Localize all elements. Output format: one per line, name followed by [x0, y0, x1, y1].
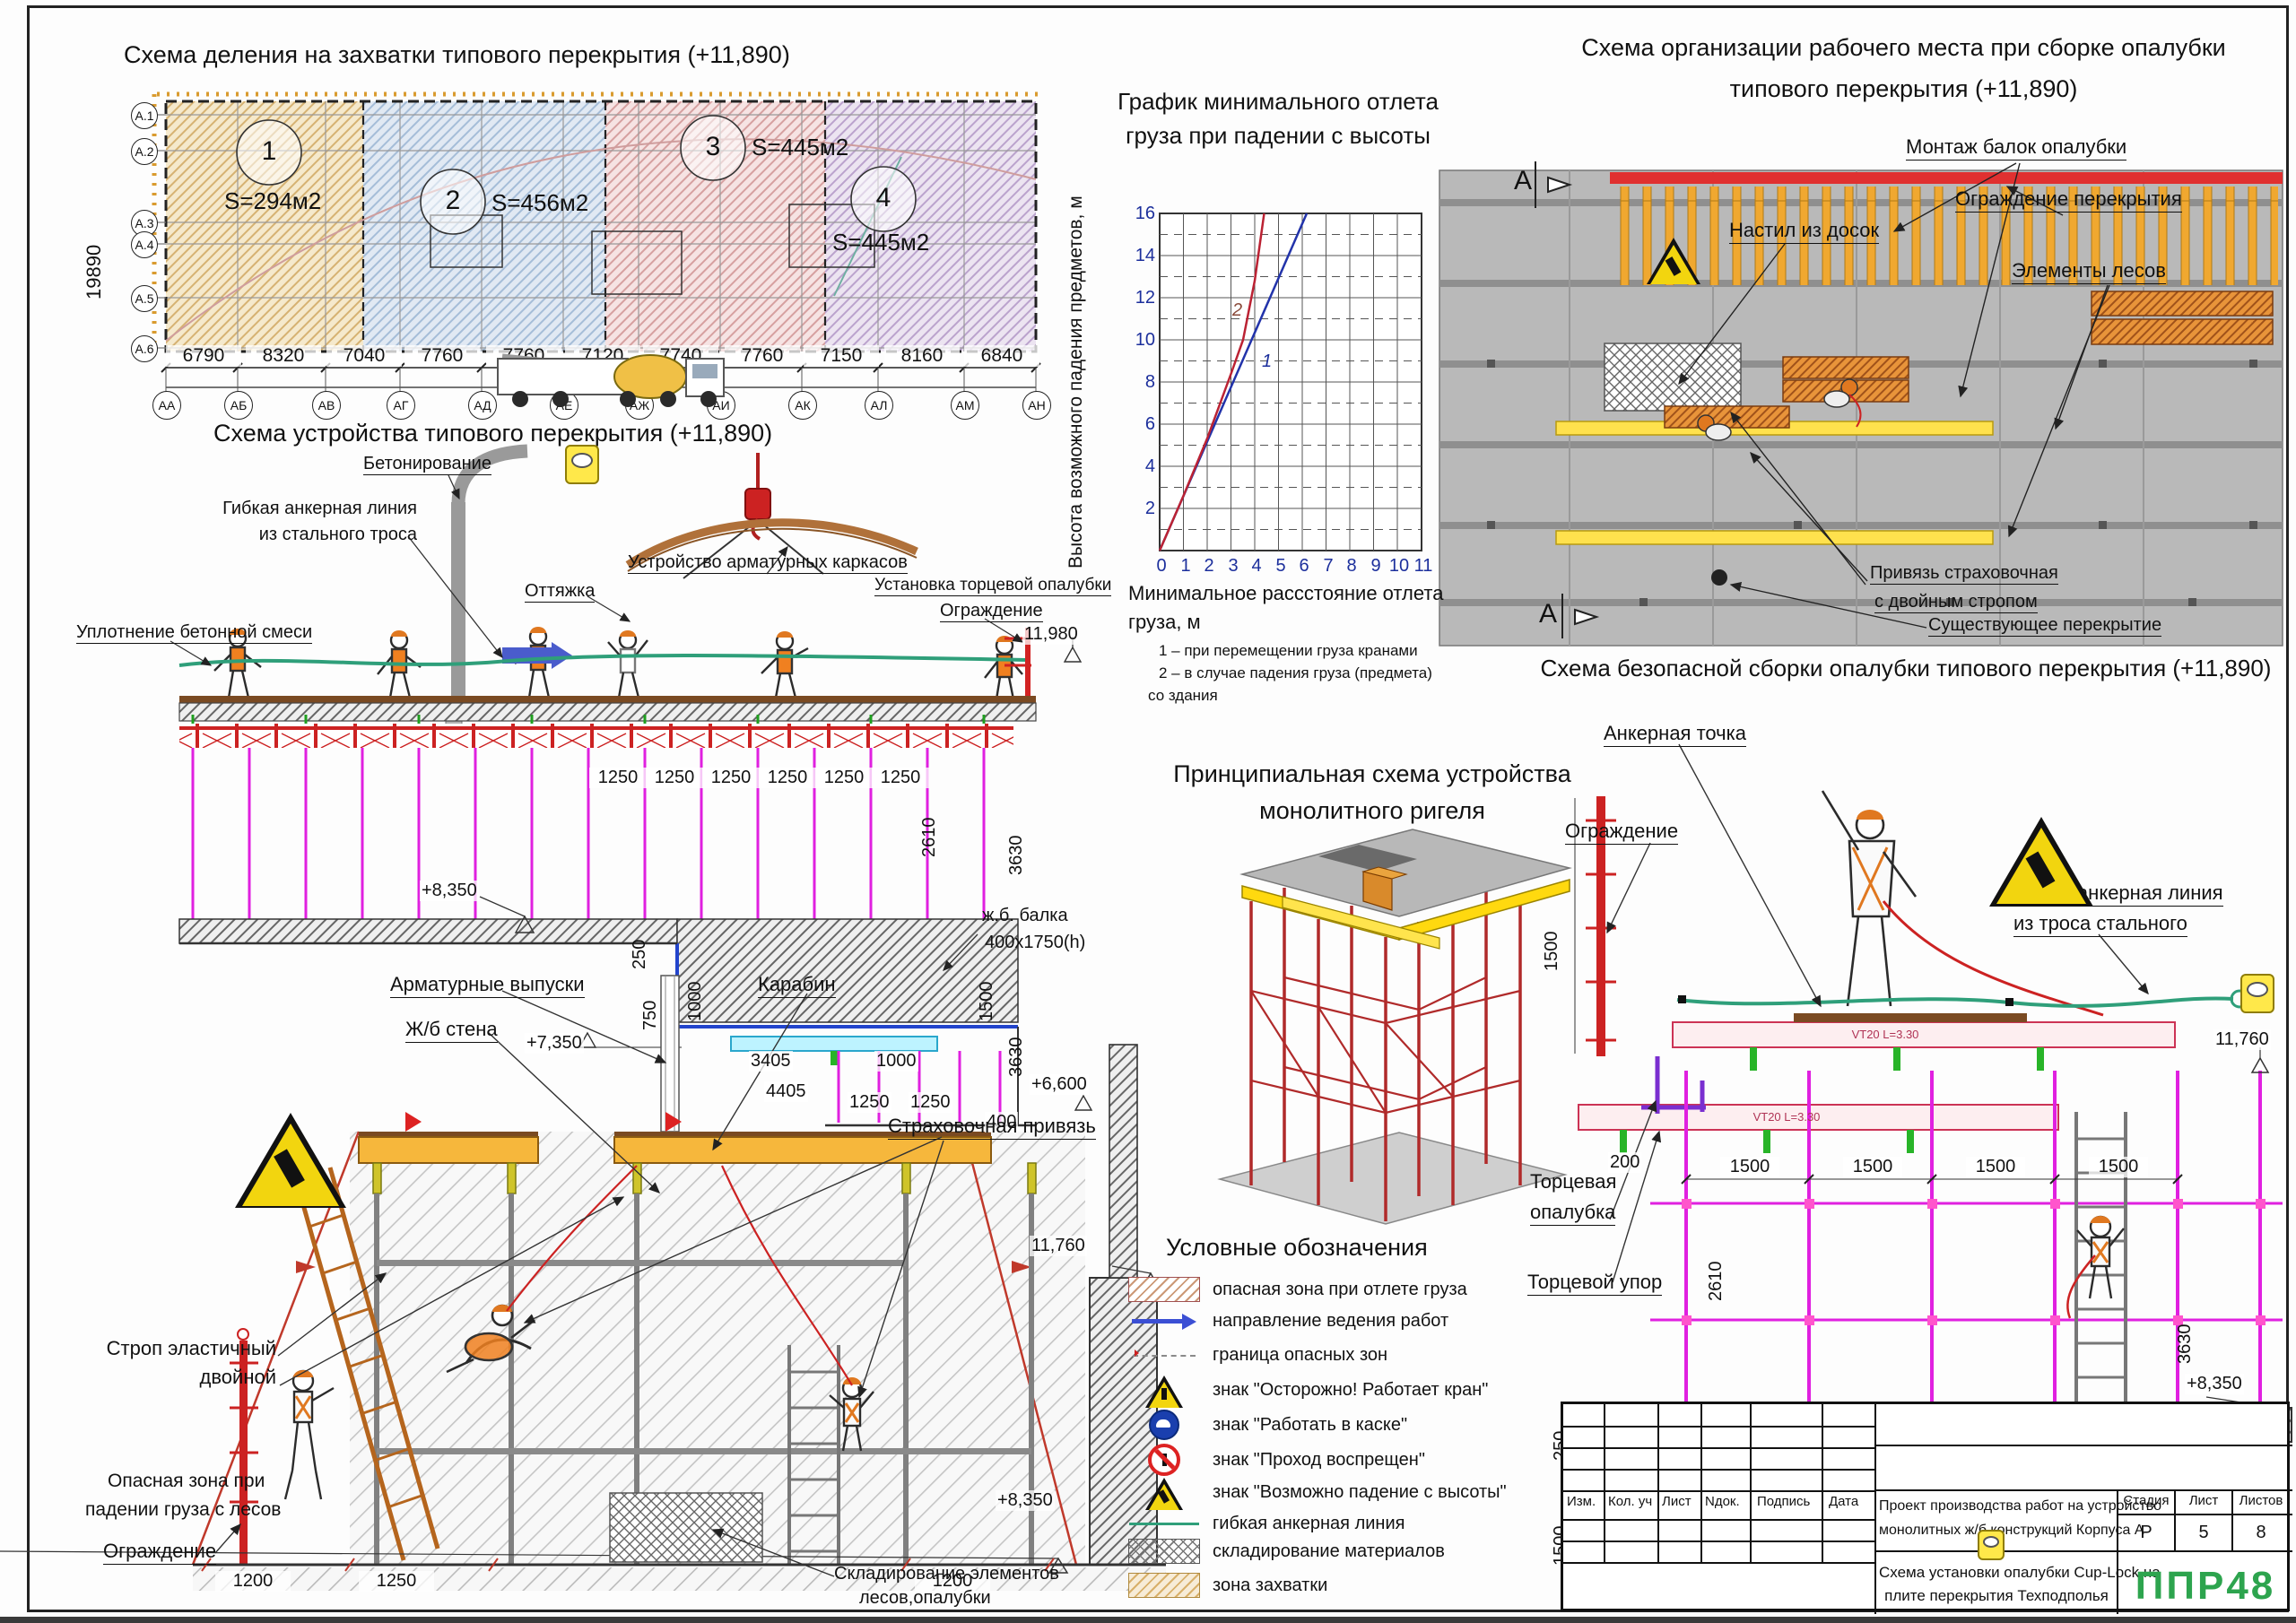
anchor-line: [179, 655, 1027, 665]
x-tick: 5: [1268, 556, 1293, 577]
axis-bubble: АА: [152, 391, 181, 420]
legend-label: зона захватки: [1213, 1575, 1327, 1596]
level-11760-scaffold: 11,760: [1030, 1236, 1087, 1256]
curve-label-2: 2: [1231, 300, 1244, 321]
plan-dim: 8320: [246, 345, 321, 367]
dim-1200: 1200: [215, 1571, 291, 1592]
section-mark-a-bottom: А: [1539, 599, 1557, 629]
workplace-title-2: типового перекрытия (+11,890): [1525, 75, 2283, 103]
label-end-stop: Торцевой упор: [1527, 1271, 1662, 1296]
dim-1250: 1250: [359, 1571, 434, 1592]
tb-project-1: Проект производства работ на устройство: [1879, 1498, 2114, 1515]
workplace-plan-drawing: [1435, 103, 2287, 652]
plan-dim: 6840: [964, 345, 1039, 367]
axis-label: АГ: [394, 398, 409, 412]
y-tick: 8: [1121, 372, 1157, 393]
worker-ladder-left: [285, 1370, 334, 1499]
dim-1500: 1500: [977, 980, 997, 1024]
legend-item-fall-sign: знак "Возможно падение с высоты": [1128, 1474, 1507, 1510]
axis-bubble-a6: А.6: [131, 335, 158, 362]
level-8350: +8,350: [420, 881, 479, 901]
no-passage-sign-icon: [1148, 1444, 1180, 1476]
label-danger-zone-1: Опасная зона при: [108, 1471, 265, 1492]
dim-2610: 2610: [1706, 1260, 1726, 1304]
title-block: Изм. Кол. уч Лист Nдок. Подпись Дата Про…: [1561, 1402, 2290, 1611]
dim-1250: 1250: [702, 768, 760, 788]
legend-label: знак "Проход воспрещен": [1213, 1450, 1425, 1471]
label-rebar-cages: Устройство арматурных каркасов: [628, 552, 908, 574]
label-guard-device: Ограждение: [940, 601, 1043, 622]
level-11980: 11,980: [1022, 624, 1080, 645]
axis-label: АВ: [318, 398, 335, 412]
axis-label: А.1: [135, 108, 153, 123]
axis-label: АН: [1028, 398, 1045, 412]
x-tick: 2: [1196, 556, 1222, 577]
axis-label: А.6: [135, 342, 153, 356]
axis-label: АЛ: [871, 398, 888, 412]
anchor-line: [1677, 998, 2233, 1005]
label-carabiner: Карабин: [758, 974, 836, 998]
legend-item-boundary: граница опасных зон: [1128, 1345, 1387, 1366]
plan-dim: 8160: [884, 345, 960, 367]
x-tick: 9: [1363, 556, 1388, 577]
legend-label: знак "Осторожно! Работает кран": [1213, 1380, 1488, 1401]
axis-label: А.4: [135, 238, 153, 252]
legend-title: Условные обозначения: [1166, 1234, 1428, 1262]
dim-1250: 1250: [589, 768, 647, 788]
axis-bubble: АК: [788, 391, 817, 420]
beam-mark: VT20 L=3.30: [1731, 1110, 1842, 1124]
zone-2-number: 2: [439, 186, 467, 216]
comment-icon: [565, 445, 599, 484]
dim-1500: 1500: [1966, 1157, 2025, 1177]
axis-label: А.2: [135, 144, 153, 159]
label-mount-beams: Монтаж балок опалубки: [1906, 136, 2126, 161]
legend-item-helmet-sign: знак "Работать в каске": [1128, 1410, 1407, 1440]
dim-1250: 1250: [759, 768, 816, 788]
dim-1250: 1250: [872, 768, 929, 788]
fall-warning-sign-icon: [235, 1110, 346, 1208]
label-existing-slab: Существующее перекрытие: [1928, 615, 2161, 637]
label-harness-1: Привязь страховочная: [1870, 563, 2058, 585]
x-tick: 8: [1339, 556, 1364, 577]
fall-warning-sign-icon: [1145, 1475, 1183, 1510]
tb-doc-1: Схема установки опалубки Cup-Lock на: [1879, 1564, 2114, 1582]
storage-block: [610, 1493, 762, 1562]
y-tick: 6: [1121, 414, 1157, 435]
axis-label: АА: [159, 398, 176, 412]
zone-4-area: S=445м2: [832, 230, 929, 256]
x-tick: 7: [1316, 556, 1341, 577]
zone-4-number: 4: [869, 183, 898, 213]
label-anchor-cable-2: из троса стального: [2013, 913, 2187, 937]
legend-label: направление ведения работ: [1213, 1311, 1448, 1332]
x-tick: 6: [1291, 556, 1317, 577]
y-tick: 2: [1121, 499, 1157, 519]
section-mark-a-top: А: [1514, 166, 1532, 196]
worker-on-ladder: [2077, 1216, 2124, 1298]
dim-1000: 1000: [685, 980, 706, 1024]
dim-1250: 1250: [848, 1092, 891, 1113]
y-tick: 12: [1121, 288, 1157, 308]
label-slab-guard: Ограждение перекрытия: [1955, 188, 2182, 213]
axis-bubble-a5: А.5: [131, 285, 158, 312]
axis-bubble: АН: [1022, 391, 1051, 420]
zone-3-area: S=445м2: [752, 135, 848, 161]
safe-title: Схема безопасной сборки опалубки типовог…: [1516, 655, 2296, 682]
dim-750: 750: [640, 999, 661, 1032]
legend-label: граница опасных зон: [1213, 1345, 1387, 1366]
helmet-sign-icon: [1149, 1410, 1179, 1440]
dim-2610: 2610: [919, 816, 940, 860]
label-end-formwork-1: Торцевая: [1530, 1171, 1616, 1193]
legend-item-direction: направление ведения работ: [1128, 1311, 1448, 1332]
axis-label: А.5: [135, 291, 153, 306]
label-plank-deck: Настил из досок: [1729, 220, 1879, 244]
fall-warning-sign-icon: [1647, 235, 1700, 284]
dim-1250: 1250: [909, 1092, 952, 1113]
label-harness-2: с двойным стропом: [1874, 592, 2038, 613]
y-tick: 4: [1121, 456, 1157, 477]
dim-3630: 3630: [2175, 1323, 2196, 1367]
company-logo: ППР48: [2118, 1564, 2292, 1609]
label-storage-1: Складирование элементов: [834, 1564, 1059, 1584]
label-sling-2: двойной: [79, 1367, 276, 1389]
legend-item-zone: зона захватки: [1128, 1573, 1327, 1598]
comment-icon: [2240, 974, 2274, 1013]
tb-sheets-label: Листов: [2233, 1493, 2289, 1508]
tb-header: Дата: [1829, 1494, 1858, 1509]
label-danger-zone-2: падении груза с лесов: [85, 1499, 281, 1521]
label-end-formwork: Установка торцевой опалубки: [874, 576, 1111, 596]
x-tick: 4: [1244, 556, 1269, 577]
axis-label: АБ: [230, 398, 248, 412]
label-rc-beam-1: ж.б. балка: [982, 906, 1068, 925]
monolithic-girder-3d: [1193, 794, 1587, 1237]
plan-height-dim: 19890: [83, 243, 106, 301]
legend-item-anchor-line: гибкая анкерная линия: [1128, 1514, 1405, 1534]
legend-label: знак "Работать в каске": [1213, 1415, 1407, 1436]
tb-doc-2: плите перекрытия Техподполья: [1879, 1587, 2114, 1605]
chart-title-1: График минимального отлета: [1072, 88, 1484, 116]
label-rebar-outlets: Арматурные выпуски: [390, 974, 585, 998]
level-8350-scaffold: +8,350: [996, 1490, 1055, 1511]
tb-sheets-value: 8: [2233, 1523, 2289, 1543]
dim-1500: 1500: [1720, 1157, 1779, 1177]
label-sling-1: Строп эластичный: [79, 1338, 276, 1360]
y-tick: 16: [1121, 204, 1157, 224]
legend-item-danger-zone: опасная зона при отлете груза: [1128, 1277, 1467, 1302]
storage-hatch-icon: [1128, 1539, 1200, 1564]
label-guard-safe: Ограждение: [1565, 820, 1678, 845]
concrete-truck: [484, 352, 744, 414]
y-tick: 10: [1121, 330, 1157, 351]
dim-3630: 3630: [1006, 1036, 1027, 1080]
axis-bubble: АЛ: [865, 391, 893, 420]
label-rc-beam-2: 400х1750(h): [985, 933, 1085, 952]
zone-hatch-icon: [1128, 1573, 1200, 1598]
axis-bubble: АГ: [387, 391, 415, 420]
plan-dim: 7040: [326, 345, 402, 367]
dim-4405: 4405: [764, 1081, 808, 1102]
y-tick: 14: [1121, 246, 1157, 266]
axis-bubble: АБ: [224, 391, 253, 420]
level-8350-safe: +8,350: [2185, 1374, 2244, 1394]
dim-250: 250: [630, 938, 650, 971]
dim-1250: 1250: [815, 768, 873, 788]
curve-label-1: 1: [1260, 352, 1274, 372]
x-tick: 0: [1149, 556, 1174, 577]
tb-header: Изм.: [1567, 1494, 1596, 1509]
danger-boundary-icon: [1133, 1355, 1196, 1357]
device-title: Схема устройства типового перекрытия (+1…: [213, 420, 772, 447]
axis-label: АК: [795, 398, 811, 412]
beam-mark: VT20 L=3.30: [1830, 1028, 1941, 1041]
mono-title-1: Принципиальная схема устройства: [1148, 760, 1596, 788]
plan-title: Схема деления на захватки типового перек…: [124, 41, 790, 69]
label-end-formwork-2: опалубка: [1530, 1202, 1615, 1226]
level-6600: +6,600: [1030, 1074, 1089, 1095]
label-guy: Оттяжка: [525, 581, 595, 603]
zone-2-area: S=456м2: [491, 190, 588, 216]
tb-header: Nдок.: [1705, 1494, 1740, 1509]
chart-note-2: 2 – в случае падения груза (предмета): [1159, 664, 1432, 681]
x-tick: 1: [1173, 556, 1198, 577]
dim-3405: 3405: [749, 1051, 793, 1072]
legend-item-crane-sign: знак "Осторожно! Работает кран": [1128, 1372, 1488, 1408]
anchor-line-icon: [1129, 1523, 1199, 1525]
legend-label: складирование материалов: [1213, 1541, 1445, 1562]
axis-label: А.3: [135, 216, 153, 230]
label-scaffold-elements: Элементы лесов: [2012, 260, 2166, 284]
dim-1250: 1250: [646, 768, 703, 788]
axis-bubble-a1: А.1: [131, 102, 158, 129]
slab-guard-bar: [1610, 172, 2283, 184]
material-storage-area: [1605, 343, 1741, 411]
label-anchor-line-1: Гибкая анкерная линия: [121, 499, 417, 518]
tb-header: Кол. уч: [1608, 1494, 1652, 1509]
axis-bubble: АВ: [312, 391, 341, 420]
zone-3-number: 3: [699, 132, 727, 162]
dim-3630: 3630: [1006, 834, 1027, 878]
chart-ylabel: Высота возможного падения предметов, м: [1065, 194, 1087, 570]
zone-1-area: S=294м2: [224, 188, 321, 214]
chart-xlabel-2: груза, м: [1128, 612, 1201, 634]
zone-1-number: 1: [255, 136, 283, 167]
axis-bubble-a4: А.4: [131, 231, 158, 258]
axis-bubble: АМ: [951, 391, 979, 420]
worker-on-platform: [1822, 791, 1916, 1006]
label-compaction: Уплотнение бетонной смеси: [76, 622, 312, 644]
danger-zone-hatch-icon: [1128, 1277, 1200, 1302]
chart-note-1: 1 – при перемещении груза кранами: [1159, 642, 1418, 659]
plan-dim: 7760: [404, 345, 480, 367]
tb-header: Лист: [1662, 1494, 1692, 1509]
label-anchor-line-2: из стального троса: [121, 525, 417, 544]
label-guard-scaffold: Ограждение: [103, 1541, 216, 1565]
x-tick: 10: [1387, 556, 1412, 577]
workplace-title-1: Схема организации рабочего места при сбо…: [1525, 34, 2283, 62]
work-direction-arrow-icon: [1132, 1314, 1196, 1330]
plan-dim: 6790: [166, 345, 241, 367]
legend-label: гибкая анкерная линия: [1213, 1514, 1405, 1534]
crane-warning-sign-icon: [1145, 1373, 1183, 1408]
tb-stage-value: Р: [2118, 1523, 2174, 1543]
legend-item-no-pass-sign: знак "Проход воспрещен": [1128, 1444, 1425, 1476]
label-concreting: Бетонирование: [363, 454, 491, 475]
chart-xlabel-1: Минимальное рассстояние отлета: [1128, 583, 1443, 605]
mono-title-2: монолитного ригеля: [1148, 797, 1596, 825]
label-safety-harness: Страховочная привязь: [888, 1115, 1096, 1140]
axis-bubble-a2: А.2: [131, 138, 158, 165]
tb-header: Подпись: [1757, 1494, 1810, 1509]
fall-warning-sign-icon: [1989, 814, 2093, 907]
page-edge: [0, 1617, 2296, 1623]
dim-200: 200: [1608, 1152, 1641, 1173]
legend-label: опасная зона при отлете груза: [1213, 1280, 1467, 1300]
legend-label: знак "Возможно падение с высоты": [1213, 1482, 1507, 1503]
dim-1500: 1500: [2089, 1157, 2148, 1177]
chart-title-2: груза при падении с высоты: [1072, 122, 1484, 150]
comment-icon: [1978, 1530, 2005, 1560]
tb-sheet-value: 5: [2176, 1523, 2231, 1543]
dim-1000: 1000: [874, 1051, 918, 1072]
tb-sheet-label: Лист: [2176, 1493, 2231, 1508]
fall-distance-chart: [1160, 213, 1422, 551]
label-storage-2: лесов,опалубки: [859, 1588, 991, 1608]
chart-note-3: со здания: [1148, 687, 1218, 704]
level-11760-safe: 11,760: [2213, 1029, 2271, 1050]
dim-1500: 1500: [1843, 1157, 1902, 1177]
label-rc-wall: Ж/б стена: [405, 1019, 498, 1043]
label-anchor-point: Анкерная точка: [1604, 723, 1746, 747]
plan-dim: 7150: [804, 345, 879, 367]
legend-item-storage: складирование материалов: [1128, 1539, 1445, 1564]
dim-1500-guard: 1500: [1542, 930, 1562, 974]
tb-stage-label: Стадия: [2118, 1493, 2174, 1508]
x-tick: 11: [1411, 556, 1436, 577]
x-tick: 3: [1221, 556, 1246, 577]
level-7350: +7,350: [525, 1033, 584, 1054]
axis-label: АМ: [956, 398, 975, 412]
drawing-sheet: Схема деления на захватки типового перек…: [0, 0, 2296, 1623]
